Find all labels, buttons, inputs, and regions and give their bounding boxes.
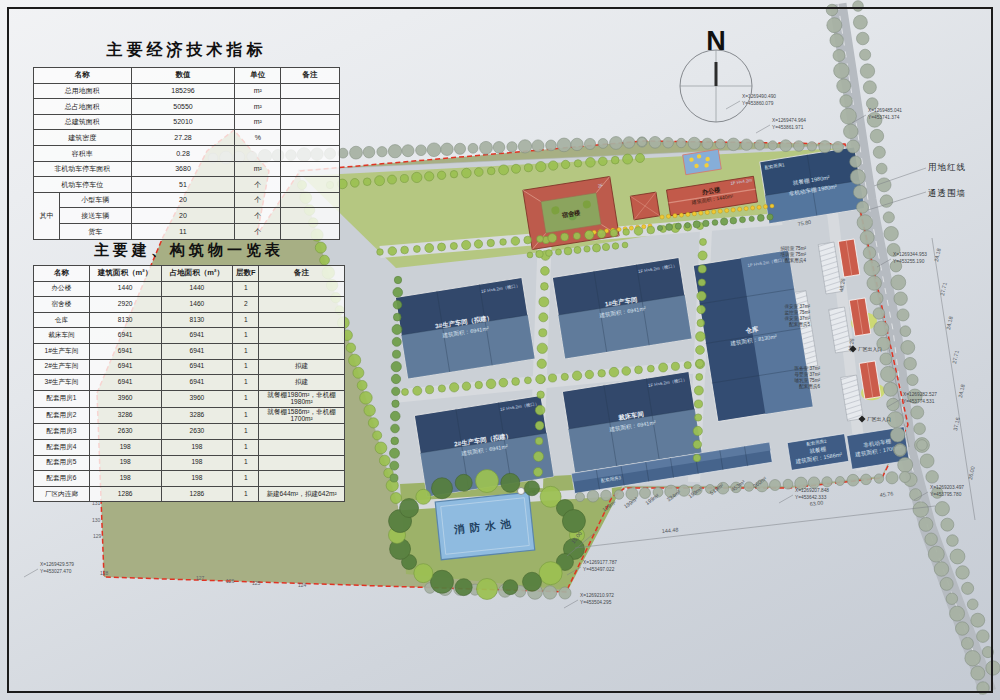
cell: 50550: [131, 99, 235, 115]
tree-icon: [819, 141, 831, 153]
table-row: 办公楼144014401: [34, 281, 345, 297]
tree-icon: [416, 145, 427, 156]
tree-icon: [925, 533, 937, 545]
tree-icon: [556, 249, 562, 255]
tree-icon: [741, 139, 752, 150]
tree-icon: [534, 468, 543, 477]
tree-icon: [368, 418, 378, 428]
cell: 2920: [89, 297, 161, 313]
col-header: 占地面积（m²）: [161, 266, 233, 282]
tree-icon: [917, 440, 928, 451]
tree-icon: [499, 378, 508, 387]
tree-icon: [623, 154, 633, 164]
tree-icon: [602, 243, 609, 250]
tree-icon: [468, 143, 478, 153]
tree-icon: [887, 398, 899, 410]
tree-icon: [413, 386, 422, 395]
tree-icon: [524, 236, 532, 244]
tree-icon: [587, 490, 599, 502]
tree-icon: [390, 448, 400, 458]
table-row: 3#生产车间694169411拟建: [34, 375, 345, 391]
tree-icon: [961, 637, 973, 649]
tree-icon: [364, 405, 375, 416]
buildings-table-title: 主要建、构筑物一览表: [33, 241, 345, 260]
bike-spot-icon: [731, 208, 735, 212]
tree-icon: [400, 499, 419, 518]
map-annotation: 128: [100, 570, 109, 576]
tree-icon: [438, 385, 445, 392]
tree-icon: [663, 137, 674, 148]
tree-icon: [884, 226, 898, 240]
cell: 拟建: [259, 359, 345, 375]
tree-icon: [622, 367, 631, 376]
indicators-table-panel: 主要经济技术指标 名称数值单位备注 总用地面积185296m²总占地面积5055…: [33, 40, 340, 240]
tree-icon: [863, 81, 876, 94]
tree-icon: [982, 647, 993, 658]
tree-icon: [501, 473, 520, 492]
map-annotation: Y=453861.971: [772, 125, 804, 130]
map-annotation: 129: [93, 533, 102, 539]
cell: 20: [131, 192, 235, 208]
cell: 仓库: [34, 312, 90, 328]
tree-icon: [847, 140, 860, 153]
cell: 1286: [161, 486, 233, 502]
red-line-label: 用地红线: [928, 162, 966, 172]
tree-icon: [860, 64, 874, 78]
cell: 小型车辆: [59, 192, 131, 208]
tree-icon: [860, 231, 874, 245]
table-row: 厂区内连廊128612861新建644m²，拟建642m²: [34, 486, 345, 502]
tree-icon: [601, 490, 612, 501]
cell: 办公楼: [34, 281, 90, 297]
tree-icon: [539, 562, 562, 585]
tree-icon: [353, 367, 364, 378]
tree-icon: [462, 382, 470, 390]
building-small-red: [630, 192, 659, 220]
tree-icon: [585, 370, 593, 378]
tree-icon: [392, 387, 400, 395]
leader-line: [564, 600, 578, 608]
cell: %: [235, 130, 281, 146]
cell: 198: [89, 455, 161, 471]
cell: 个: [235, 192, 281, 208]
table-row: 货车11个: [34, 223, 340, 239]
bike-spot-icon: [712, 210, 716, 214]
cell: m²: [235, 161, 281, 177]
cell: 1: [233, 343, 259, 359]
cell: [281, 192, 340, 208]
cell: 1: [233, 486, 259, 502]
cell: 3286: [161, 407, 233, 424]
tree-icon: [767, 214, 773, 220]
tree-icon: [727, 138, 740, 151]
tree-icon: [696, 346, 705, 355]
cell: 配套用房1: [34, 390, 90, 407]
tree-icon: [349, 354, 361, 366]
cell: 1: [233, 312, 259, 328]
tree-icon: [807, 142, 816, 151]
tree-icon: [536, 375, 545, 384]
tree-icon: [808, 477, 819, 488]
tree-icon: [612, 243, 618, 249]
tree-icon: [546, 250, 553, 257]
cell: [281, 99, 340, 115]
tree-icon: [450, 383, 459, 392]
cell: [281, 114, 340, 130]
tree-icon: [541, 283, 549, 291]
cell: 1: [233, 281, 259, 297]
tree-icon: [876, 163, 887, 174]
table-row: 2#生产车间694169411拟建: [34, 359, 345, 375]
tree-icon: [833, 50, 845, 62]
map-annotation: 24.18: [945, 316, 954, 330]
tree-icon: [884, 382, 898, 396]
table-row: 总占地面积50550m²: [34, 99, 340, 115]
tree-icon: [783, 479, 793, 489]
tree-icon: [574, 247, 581, 254]
table-row: 配套用房2328632861就餐棚1586m²，非机棚1700m²: [34, 407, 345, 424]
tree-icon: [698, 279, 705, 286]
tree-icon: [584, 246, 590, 252]
buildings-table: 名称建筑面积（m²）占地面积（m²）层数F备注 办公楼144014401宿舍楼2…: [33, 265, 345, 502]
tree-icon: [863, 247, 875, 259]
tree-icon: [730, 217, 737, 224]
cell: [281, 145, 340, 161]
tree-icon: [477, 579, 498, 600]
tree-icon: [388, 247, 397, 256]
map-annotation: 医务室 37m²: [794, 366, 820, 371]
table-row: 配套用房51981981: [34, 455, 345, 471]
tree-icon: [920, 454, 934, 468]
map-annotation: 27.71: [951, 350, 960, 364]
tree-icon: [373, 431, 382, 440]
map-annotation: X=1269210.972: [580, 593, 614, 598]
tree-icon: [962, 582, 974, 594]
tree-icon: [537, 359, 546, 368]
cell: m²: [235, 114, 281, 130]
tree-icon: [539, 297, 549, 307]
cell: 198: [161, 471, 233, 487]
tree-icon: [757, 214, 764, 221]
tree-icon: [388, 175, 397, 184]
tree-icon: [703, 220, 709, 226]
tree-icon: [822, 477, 832, 487]
tree-icon: [986, 661, 1000, 675]
tree-icon: [881, 366, 896, 381]
tree-icon: [392, 337, 401, 346]
tree-icon: [935, 502, 949, 516]
tree-icon: [524, 164, 532, 172]
col-header: 备注: [281, 68, 340, 84]
tree-icon: [390, 411, 400, 421]
map-annotation: Y=453774.531: [903, 399, 935, 404]
tree-icon: [523, 572, 542, 591]
tree-icon: [564, 247, 572, 255]
tree-icon: [391, 374, 400, 383]
cell: 货车: [59, 223, 131, 239]
map-annotation: X=1269282.527: [903, 392, 937, 397]
cell: 1460: [161, 297, 233, 313]
table-row: 总用地面积185296m²: [34, 83, 340, 99]
tree-icon: [487, 167, 495, 175]
cell: 1: [233, 328, 259, 344]
cell: 3680: [131, 161, 235, 177]
map-annotation: Y=453027.470: [40, 569, 72, 574]
table-row: 容积率0.28: [34, 145, 340, 161]
tree-icon: [462, 240, 471, 249]
fire-pool: 消防水池: [435, 492, 535, 560]
tree-icon: [535, 421, 544, 430]
bike-spot-icon: [629, 226, 633, 230]
tree-icon: [840, 95, 852, 107]
cell: 1: [233, 359, 259, 375]
tree-icon: [450, 171, 457, 178]
cell: 1440: [89, 281, 161, 297]
tree-icon: [977, 682, 989, 694]
cell: 机动车停车位: [34, 177, 132, 193]
map-annotation: 130: [92, 517, 101, 523]
bike-spot-icon: [750, 206, 754, 210]
cell: 总用地面积: [34, 83, 132, 99]
cell: 6941: [89, 359, 161, 375]
tree-icon: [487, 239, 494, 246]
tree-icon: [947, 535, 959, 547]
tree-icon: [546, 140, 557, 151]
table-row: 配套用房61981981: [34, 471, 345, 487]
tree-icon: [688, 137, 700, 149]
tree-icon: [900, 326, 911, 337]
tree-icon: [360, 392, 373, 405]
tree-icon: [856, 32, 869, 45]
col-header: 备注: [259, 266, 345, 282]
tree-icon: [635, 366, 643, 374]
tree-icon: [934, 562, 948, 576]
tree-icon: [562, 510, 585, 533]
tree-icon: [883, 212, 894, 223]
cell: 0.28: [131, 145, 235, 161]
tree-icon: [499, 165, 509, 175]
cell: 3286: [89, 407, 161, 424]
cell: 2#生产车间: [34, 359, 90, 375]
map-annotation: Y=453741.374: [868, 115, 900, 120]
tree-icon: [548, 234, 557, 243]
cell: 198: [161, 455, 233, 471]
cell: 配套用房6: [34, 471, 90, 487]
tree-icon: [965, 651, 980, 666]
cell: 裁床车间: [34, 328, 90, 344]
tree-icon: [475, 381, 482, 388]
cell: 个: [235, 223, 281, 239]
map-annotation: 199m²: [623, 496, 639, 510]
tree-icon: [557, 138, 571, 152]
tree-icon: [914, 423, 926, 435]
tree-icon: [441, 143, 453, 155]
tree-icon: [363, 146, 375, 158]
cell: 1: [233, 455, 259, 471]
tree-icon: [634, 227, 643, 236]
cell: 1: [233, 471, 259, 487]
map-annotation: 45.76: [879, 490, 893, 498]
tree-icon: [850, 156, 861, 167]
cell: [281, 208, 340, 224]
tree-icon: [891, 275, 906, 290]
tree-icon: [512, 378, 520, 386]
cell: 其中: [34, 192, 60, 239]
tree-icon: [834, 63, 849, 78]
tree-icon: [827, 18, 842, 33]
tree-icon: [427, 143, 441, 157]
tree-icon: [698, 251, 707, 260]
tree-icon: [659, 363, 668, 372]
cell: 非机动车停车面积: [34, 161, 132, 177]
table-row: 1#生产车间694169411: [34, 343, 345, 359]
tree-icon: [610, 229, 617, 236]
bike-spot-icon: [744, 206, 748, 210]
map-annotation: 63.00: [809, 499, 823, 507]
tree-icon: [536, 250, 543, 257]
cell: 198: [161, 440, 233, 456]
cell: [259, 424, 345, 440]
tree-icon: [350, 146, 363, 159]
bike-spot-icon: [705, 210, 709, 214]
bike-spot-icon: [692, 212, 696, 216]
cell: 总占地面积: [34, 99, 132, 115]
bike-spot-icon: [718, 209, 722, 213]
drawing-sheet: 宿舍楼 2F 办公楼 建筑面积：1440m² 1F H=4.2m 3#生产车间（…: [0, 0, 1000, 700]
tree-icon: [586, 158, 596, 168]
tree-icon: [474, 240, 482, 248]
tree-icon: [697, 305, 705, 313]
tree-icon: [390, 461, 399, 470]
cell: 6941: [89, 375, 161, 391]
tree-icon: [574, 160, 581, 167]
map-annotation: 125: [252, 580, 261, 586]
tree-icon: [432, 478, 453, 499]
tree-icon: [647, 226, 655, 234]
tree-icon: [856, 201, 868, 213]
cell: [281, 161, 340, 177]
cell: 1: [233, 424, 259, 440]
cell: 配套用房2: [34, 407, 90, 424]
tree-icon: [571, 138, 583, 150]
tree-icon: [393, 300, 402, 309]
cell: 1: [233, 390, 259, 407]
tree-icon: [826, 4, 837, 15]
buildings-table-panel: 主要建、构筑物一览表 名称建筑面积（m²）占地面积（m²）层数F备注 办公楼14…: [33, 241, 345, 502]
tree-icon: [867, 276, 881, 290]
map-annotation: X=1269485.041: [868, 108, 902, 113]
tree-icon: [649, 136, 661, 148]
tree-icon: [694, 386, 703, 395]
table-row: 配套用房41981981: [34, 440, 345, 456]
cell: 个: [235, 177, 281, 193]
tree-icon: [543, 586, 556, 599]
leader-line: [24, 569, 38, 577]
tree-icon: [525, 481, 540, 496]
tree-icon: [833, 142, 844, 153]
cell: 个: [235, 208, 281, 224]
tree-icon: [870, 292, 883, 305]
tree-icon: [611, 156, 619, 164]
cell: [259, 343, 345, 359]
cell: 容积率: [34, 145, 132, 161]
map-annotation: 厂区出入口: [858, 346, 882, 352]
tree-icon: [598, 157, 607, 166]
tree-icon: [676, 138, 685, 147]
tree-icon: [392, 400, 399, 407]
tree-icon: [768, 141, 777, 150]
tree-icon: [700, 239, 707, 246]
tree-icon: [357, 380, 367, 390]
bike-spot-icon: [617, 227, 621, 231]
bike-spot-icon: [770, 204, 774, 208]
cell: 6941: [161, 375, 233, 391]
tree-icon: [394, 276, 401, 283]
tree-icon: [853, 1, 864, 12]
leader-line: [779, 495, 793, 503]
tree-icon: [900, 472, 911, 483]
tree-icon: [425, 172, 434, 181]
tree-icon: [350, 179, 359, 188]
tree-icon: [697, 319, 704, 326]
cell: 2: [233, 297, 259, 313]
col-header: 数值: [131, 68, 235, 84]
tree-icon: [610, 137, 623, 150]
tree-icon: [926, 471, 939, 484]
tree-icon: [880, 353, 892, 365]
tree-icon: [379, 455, 390, 466]
cell: [235, 145, 281, 161]
cell: [281, 83, 340, 99]
tree-icon: [623, 229, 630, 236]
cell: 6941: [161, 343, 233, 359]
tree-icon: [977, 630, 990, 643]
tree-icon: [911, 406, 924, 419]
tree-icon: [454, 143, 465, 154]
tree-icon: [890, 428, 904, 442]
col-header: 名称: [34, 68, 132, 84]
tree-icon: [693, 221, 700, 228]
map-annotation: 27.71: [939, 282, 948, 296]
cell: 198: [89, 440, 161, 456]
cell: 3960: [89, 390, 161, 407]
tree-icon: [946, 593, 957, 604]
tree-icon: [844, 124, 858, 138]
tree-icon: [559, 587, 571, 599]
tree-icon: [837, 79, 851, 93]
table-row: 宿舍楼292014602: [34, 297, 345, 313]
tree-icon: [537, 343, 547, 353]
bike-spot-icon: [763, 205, 767, 209]
cell: 6941: [89, 343, 161, 359]
tree-icon: [346, 343, 355, 352]
cell: 198: [89, 471, 161, 487]
map-annotation: 26.00: [967, 466, 976, 480]
tree-icon: [671, 362, 679, 370]
cell: 11: [131, 223, 235, 239]
cell: 1#生产车间: [34, 343, 90, 359]
cell: 配套用房3: [34, 424, 90, 440]
cell: 8130: [89, 312, 161, 328]
map-annotation: X=1269490.490: [742, 94, 776, 99]
tree-icon: [850, 169, 865, 184]
tree-icon: [535, 405, 545, 415]
tree-icon: [693, 440, 701, 448]
cell: 总建筑面积: [34, 114, 132, 130]
tree-icon: [393, 313, 401, 321]
tree-icon: [861, 474, 872, 485]
tree-icon: [585, 230, 594, 239]
